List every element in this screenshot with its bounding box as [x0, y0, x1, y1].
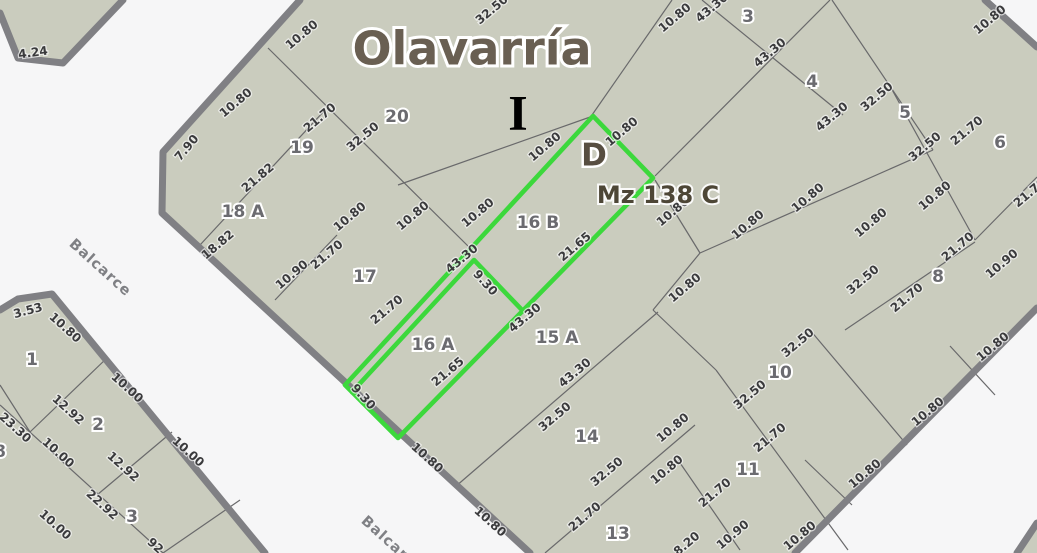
parcel-number: 11 [736, 460, 760, 480]
parcel-number: 15 A [536, 328, 580, 348]
parcel-number: 13 [606, 524, 630, 544]
parcel-number: 17 [353, 267, 377, 287]
parcel-number: 8 [0, 442, 6, 462]
parcel-number: 1 [26, 350, 38, 370]
parcel-number: 14 [575, 427, 599, 447]
parcel-number: 3 [126, 507, 138, 527]
parcel-map[interactable]: 4.243.5310.8010.807.9021.7032.5032.5021.… [0, 0, 1037, 553]
parcel-number: 2 [92, 415, 104, 435]
street-name-label: Balcarce [66, 236, 135, 300]
parcel-number: 10 [768, 363, 792, 383]
parcel-number: 19 [290, 138, 314, 158]
city-title-label: Olavarría [352, 22, 591, 76]
parcel-number: 5 [899, 103, 911, 123]
parcel-number: 16 B [517, 213, 560, 233]
parcel-number: 4 [806, 72, 818, 92]
parcel-number: 16 A [412, 335, 456, 355]
parcel-number: 18 A [222, 202, 266, 222]
cadastral-map-canvas[interactable]: 4.243.5310.8010.807.9021.7032.5032.5021.… [0, 0, 1037, 553]
parcel-number: 6 [994, 133, 1006, 153]
manzana-label: Mz 138 C [597, 181, 719, 209]
parcel-number: 3 [742, 7, 754, 27]
parcel-number: 20 [385, 107, 409, 127]
parcel-number: 8 [932, 267, 944, 287]
street-name-label: Balcarce [358, 513, 427, 553]
corner-marker: D [581, 138, 607, 174]
section-marker: I [508, 84, 527, 140]
